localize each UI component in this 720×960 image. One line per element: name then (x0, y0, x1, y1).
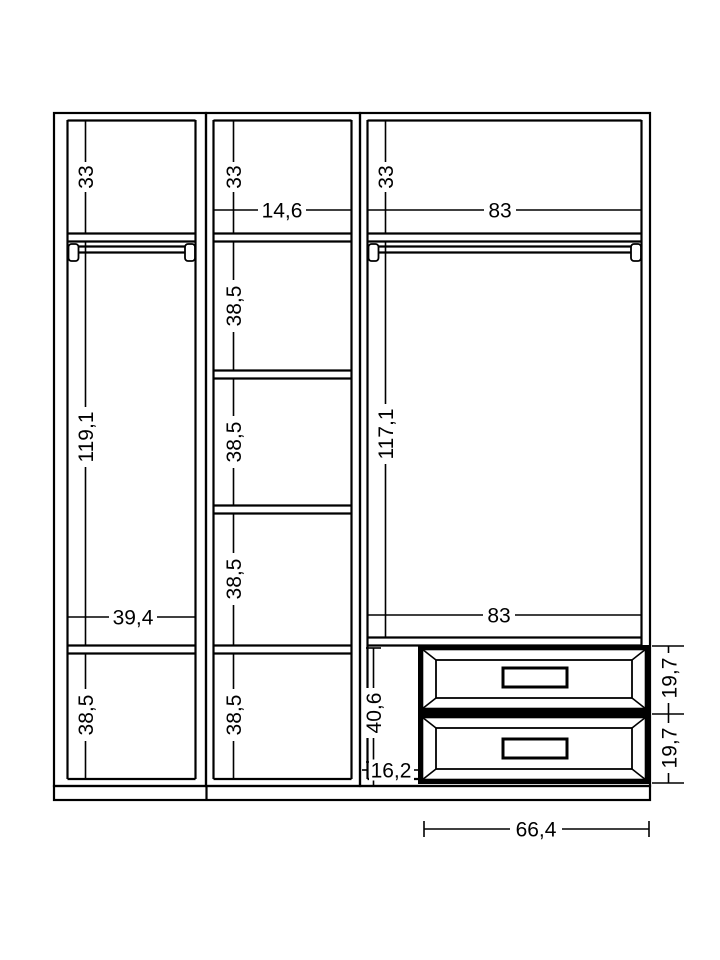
dim-right-width-top: 83 (488, 200, 511, 223)
dim-left-width: 39,4 (113, 607, 154, 630)
dim-right-hanging-height: 117,1 (375, 409, 398, 460)
right-top-shelf (368, 234, 642, 242)
middle-shelf-2 (214, 371, 352, 379)
drawer-unit (419, 647, 649, 783)
dim-middle-section-2: 38,5 (223, 422, 246, 463)
dim-middle-top-height: 33 (223, 165, 246, 188)
left-top-shelf (68, 234, 196, 242)
dim-middle-section-3: 38,5 (223, 559, 246, 600)
dim-right-width-bottom: 83 (487, 605, 510, 628)
dim-right-base-height: 16,2 (371, 760, 412, 783)
plinth (54, 786, 650, 800)
right-bottom-shelf (368, 638, 642, 646)
middle-shelf-4 (214, 646, 352, 654)
dimension-labels: 33 119,1 39,4 38,5 33 14,6 38,5 38,5 38,… (75, 162, 682, 842)
dim-middle-section-1: 38,5 (223, 286, 246, 327)
right-clothes-rail (369, 244, 642, 261)
drawer-top (422, 649, 646, 709)
dim-middle-width: 14,6 (262, 200, 303, 223)
middle-shelf-1 (214, 234, 352, 242)
drawer-bottom (422, 717, 646, 780)
left-bottom-shelf (68, 646, 196, 654)
middle-shelf-3 (214, 506, 352, 514)
dim-left-bottom-height: 38,5 (75, 695, 98, 736)
dim-drawer-unit-width: 66,4 (516, 819, 557, 842)
dim-drawer-front-1: 19,7 (659, 658, 682, 699)
dim-right-drawer-zone-height: 40,6 (363, 693, 386, 734)
drawer-handle (503, 668, 567, 687)
dim-middle-section-4: 38,5 (223, 695, 246, 736)
dim-left-top-height: 33 (75, 165, 98, 188)
wardrobe-drawing: 33 119,1 39,4 38,5 33 14,6 38,5 38,5 38,… (0, 0, 720, 960)
dim-right-top-height: 33 (375, 165, 398, 188)
technical-drawing-page: 33 119,1 39,4 38,5 33 14,6 38,5 38,5 38,… (0, 0, 720, 960)
left-clothes-rail (69, 244, 196, 261)
dim-left-hanging-height: 119,1 (75, 412, 98, 463)
dim-drawer-front-2: 19,7 (659, 728, 682, 769)
drawer-handle (503, 739, 567, 758)
